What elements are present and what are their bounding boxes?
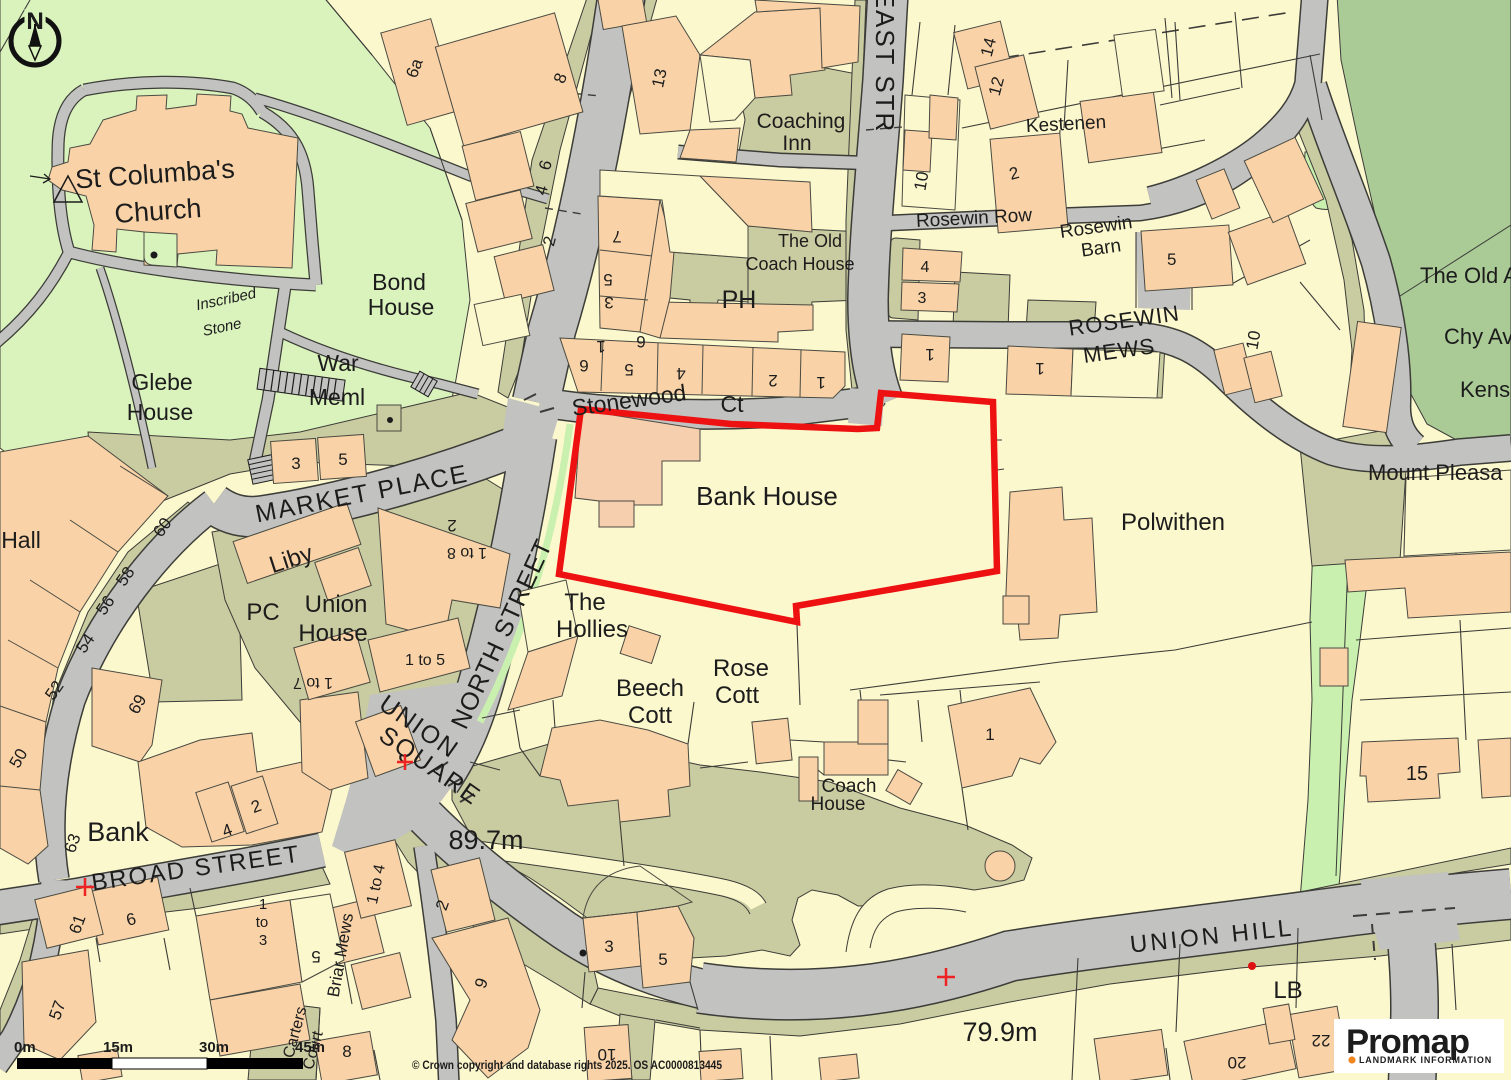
svg-text:LB: LB xyxy=(1273,977,1302,1004)
svg-text:Mount Pleasa: Mount Pleasa xyxy=(1368,460,1503,485)
svg-text:Inn: Inn xyxy=(782,132,811,155)
svg-text:Polwithen: Polwithen xyxy=(1121,509,1225,536)
svg-text:5: 5 xyxy=(311,947,320,966)
svg-text:45m: 45m xyxy=(295,1039,325,1056)
svg-text:15: 15 xyxy=(1406,763,1428,785)
svg-text:7: 7 xyxy=(612,227,621,246)
svg-text:1: 1 xyxy=(259,896,267,913)
svg-text:5: 5 xyxy=(624,360,633,379)
svg-text:1: 1 xyxy=(596,337,605,356)
svg-text:The: The xyxy=(564,589,605,616)
svg-text:20: 20 xyxy=(1228,1053,1247,1072)
svg-text:1: 1 xyxy=(816,373,825,392)
svg-text:Hollies: Hollies xyxy=(556,616,628,643)
svg-text:Bank: Bank xyxy=(87,817,149,847)
svg-text:22: 22 xyxy=(1312,1031,1331,1050)
svg-text:3: 3 xyxy=(291,454,300,473)
svg-text:House: House xyxy=(811,794,866,815)
svg-text:2: 2 xyxy=(768,371,777,390)
svg-text:5: 5 xyxy=(658,950,667,969)
svg-text:Church: Church xyxy=(113,193,202,229)
svg-text:5: 5 xyxy=(1167,250,1176,269)
svg-text:Chy Av: Chy Av xyxy=(1444,324,1511,349)
svg-text:4: 4 xyxy=(676,364,685,383)
svg-text:1: 1 xyxy=(985,725,994,744)
svg-text:1 to 7: 1 to 7 xyxy=(293,674,333,691)
svg-text:3: 3 xyxy=(604,293,613,312)
svg-text:Ct: Ct xyxy=(721,391,745,417)
svg-text:Beech: Beech xyxy=(616,675,684,702)
svg-text:Meml: Meml xyxy=(309,384,365,410)
svg-text:© Crown copyright and database: © Crown copyright and database rights 20… xyxy=(412,1060,723,1072)
svg-text:Union: Union xyxy=(305,591,368,618)
svg-text:Kens: Kens xyxy=(1460,377,1510,402)
svg-text:House: House xyxy=(127,399,193,425)
svg-text:0m: 0m xyxy=(14,1039,36,1056)
svg-text:30m: 30m xyxy=(199,1039,229,1056)
svg-text:House: House xyxy=(368,294,434,320)
svg-text:13: 13 xyxy=(648,67,671,89)
svg-text:Glebe: Glebe xyxy=(131,369,192,395)
svg-text:Cott: Cott xyxy=(628,702,672,729)
svg-text:3: 3 xyxy=(918,290,927,307)
svg-text:1: 1 xyxy=(1035,359,1044,378)
svg-text:LANDMARK INFORMATION: LANDMARK INFORMATION xyxy=(1359,1055,1492,1065)
svg-text:5: 5 xyxy=(338,450,347,469)
svg-text:Hall: Hall xyxy=(1,527,41,553)
svg-text:House: House xyxy=(298,620,367,647)
svg-text:6: 6 xyxy=(636,332,645,351)
svg-text:3: 3 xyxy=(259,932,267,949)
svg-text:The Old A: The Old A xyxy=(1420,263,1511,288)
svg-text:Kestenen: Kestenen xyxy=(1025,112,1106,137)
svg-text:Bank House: Bank House xyxy=(696,481,838,511)
svg-text:8: 8 xyxy=(342,1042,351,1061)
svg-text:Coach House: Coach House xyxy=(745,254,854,274)
svg-text:10: 10 xyxy=(910,170,932,192)
svg-text:The Old: The Old xyxy=(778,231,842,251)
svg-text:79.9m: 79.9m xyxy=(962,1017,1037,1047)
svg-text:2: 2 xyxy=(447,516,456,535)
svg-text:PC: PC xyxy=(246,599,279,626)
svg-text:5: 5 xyxy=(603,270,612,289)
svg-text:1: 1 xyxy=(925,345,934,364)
svg-text:Bond: Bond xyxy=(372,269,426,295)
svg-text:1 to 8: 1 to 8 xyxy=(447,544,487,561)
svg-text:89.7m: 89.7m xyxy=(448,825,523,855)
svg-text:10: 10 xyxy=(1242,329,1264,351)
svg-text:PH: PH xyxy=(722,286,757,314)
svg-text:Coaching: Coaching xyxy=(757,110,846,133)
svg-text:to: to xyxy=(256,914,269,931)
svg-text:1 to 5: 1 to 5 xyxy=(405,652,445,669)
svg-text:6: 6 xyxy=(579,356,588,375)
svg-text:15m: 15m xyxy=(103,1039,133,1056)
svg-text:Cott: Cott xyxy=(715,682,759,709)
svg-text:War: War xyxy=(317,350,359,376)
svg-text:4: 4 xyxy=(921,259,930,276)
svg-text:3: 3 xyxy=(604,937,613,956)
svg-text:Rose: Rose xyxy=(713,655,769,682)
svg-text:EAST STR: EAST STR xyxy=(870,0,900,133)
